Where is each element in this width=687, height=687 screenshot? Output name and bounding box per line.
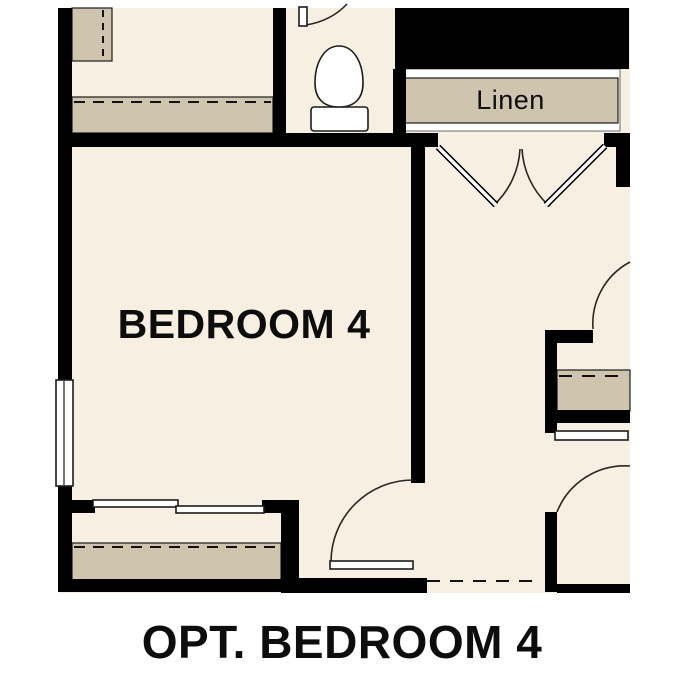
bypass-door-panel-right	[176, 506, 264, 513]
wall-lower-right-vertical	[545, 512, 557, 592]
window-symbol	[56, 380, 73, 486]
wall-bedroom-bottom	[281, 578, 427, 593]
wall-left-lower	[58, 486, 72, 592]
floor-plan: BEDROOM 4 Linen OPT. BEDROOM 4	[0, 0, 687, 687]
linen-closet-label: Linen	[403, 85, 618, 116]
bedroom-door-leaf	[330, 561, 413, 569]
toilet-bowl	[315, 46, 363, 107]
wall-linen-door-stub-left	[398, 133, 438, 147]
toilet-tank	[311, 107, 368, 131]
bedroom-room-label: BEDROOM 4	[84, 301, 404, 348]
right-closet-opening-symbol	[555, 431, 628, 440]
wall-lower-right-bottom	[557, 584, 630, 593]
shelf-top-left-room	[72, 8, 112, 61]
wall-closet-right	[281, 500, 299, 592]
shelf-bedroom-closet	[72, 543, 281, 580]
wall-closet-bottom	[58, 579, 299, 592]
wall-right-closet-bottom	[556, 410, 630, 423]
wall-right-closet-left	[545, 330, 557, 433]
wc-door-leaf	[299, 7, 307, 26]
bypass-door-panel-left	[93, 500, 178, 507]
wall-closet-door-stub-right	[262, 500, 288, 513]
wall-wc-divider	[273, 8, 286, 147]
wall-top-right-mass	[395, 8, 629, 69]
plan-caption: OPT. BEDROOM 4	[0, 615, 684, 669]
wall-bedroom-top	[58, 133, 437, 147]
wall-left-upper	[58, 8, 72, 382]
wall-bedroom-right	[411, 147, 425, 483]
wall-closet-door-stub-left	[72, 500, 95, 513]
wall-linen-door-stub-right	[604, 133, 630, 147]
